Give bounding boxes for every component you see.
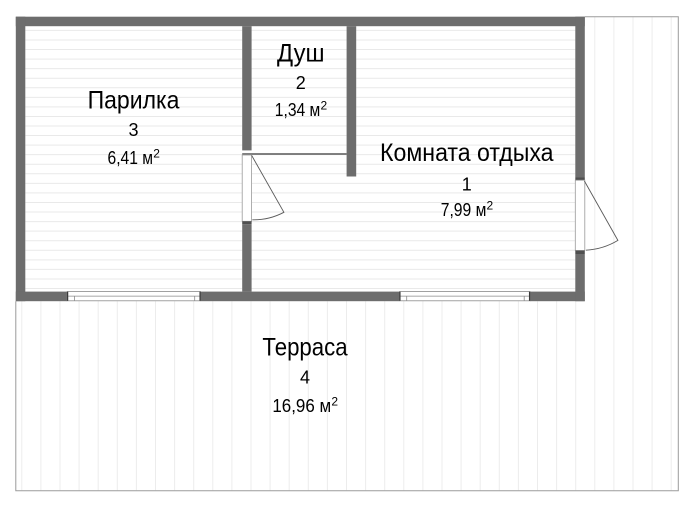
svg-text:2: 2 (296, 73, 306, 93)
svg-text:4: 4 (300, 368, 310, 388)
svg-text:Терраса: Терраса (262, 333, 347, 361)
svg-text:6,41 м: 6,41 м (108, 148, 154, 168)
svg-text:2: 2 (331, 394, 338, 408)
svg-text:7,99 м: 7,99 м (441, 200, 487, 220)
svg-text:1: 1 (462, 175, 472, 195)
svg-text:16,96 м: 16,96 м (272, 396, 331, 416)
svg-text:Комната отдыха: Комната отдыха (380, 139, 554, 167)
svg-text:1,34 м: 1,34 м (275, 100, 321, 120)
svg-text:2: 2 (321, 98, 328, 112)
svg-text:3: 3 (128, 120, 138, 140)
svg-text:Душ: Душ (277, 40, 325, 68)
svg-text:2: 2 (153, 147, 160, 161)
svg-text:2: 2 (487, 198, 494, 212)
svg-text:Парилка: Парилка (88, 86, 180, 114)
